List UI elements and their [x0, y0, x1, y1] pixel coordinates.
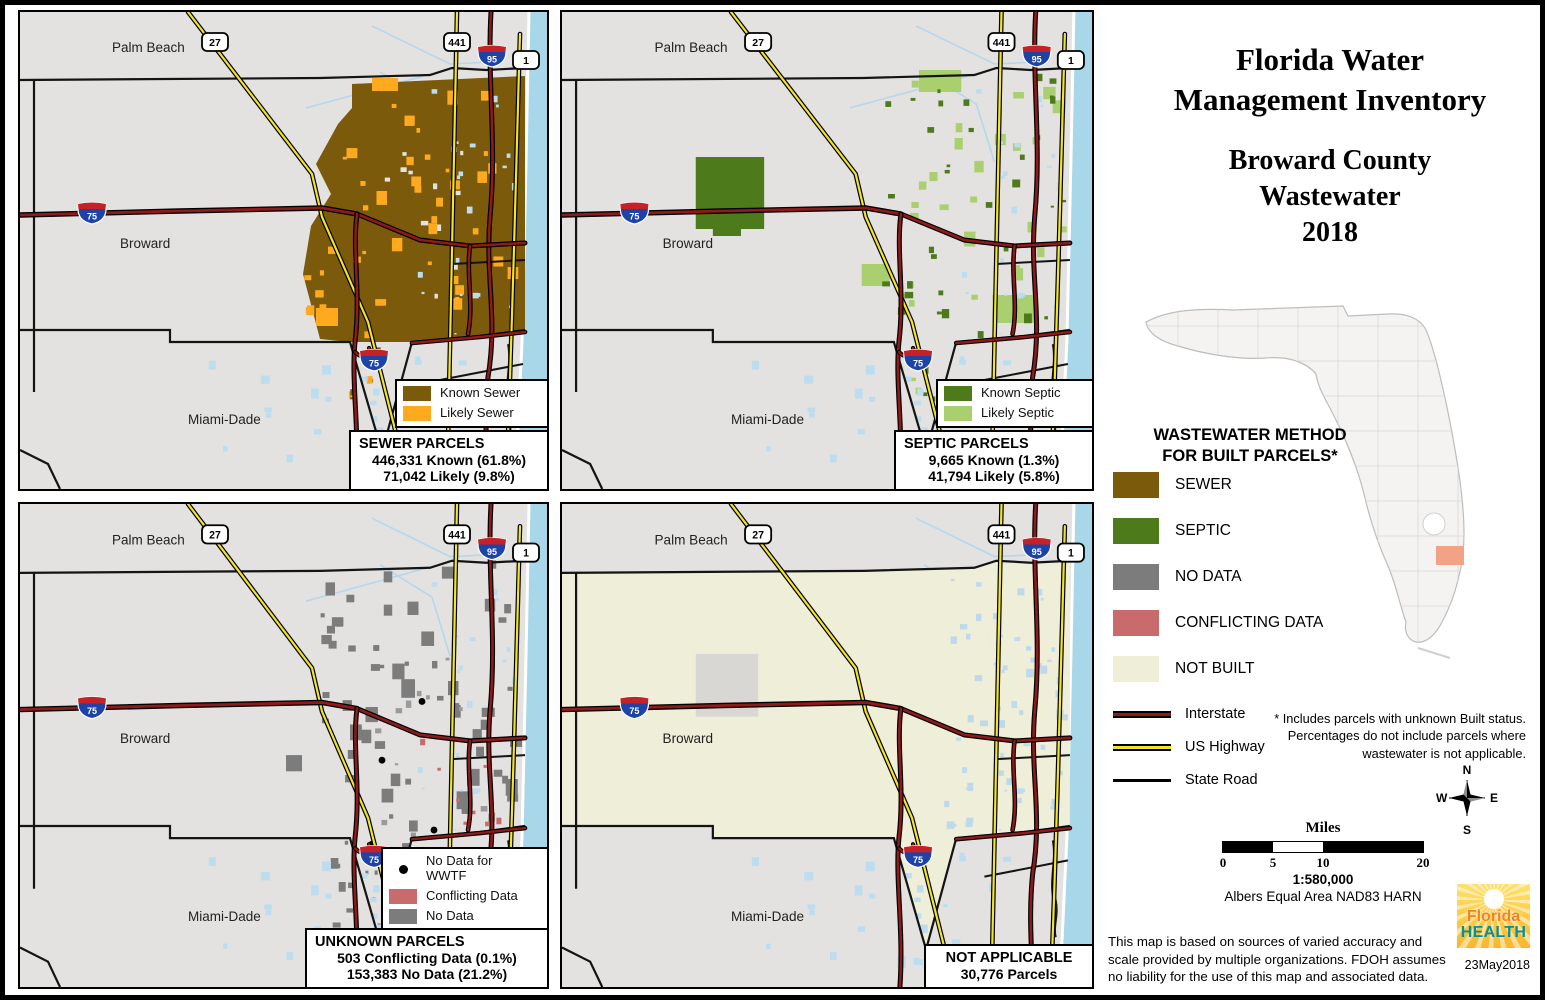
svg-text:95: 95 [487, 55, 497, 65]
map-scale-ratio: 1:580,000 [1205, 872, 1441, 887]
svg-text:Broward: Broward [663, 731, 714, 746]
figure-subtitle: Broward County Wastewater 2018 [1130, 143, 1530, 250]
stats-title: NOT APPLICABLE [934, 950, 1084, 966]
svg-text:75: 75 [913, 855, 923, 865]
unknown-stats-box: UNKNOWN PARCELS 503 Conflicting Data (0.… [305, 928, 549, 989]
svg-text:27: 27 [209, 529, 221, 541]
figure-title: Florida Water Management Inventory [1130, 40, 1530, 121]
legend-label: Conflicting Data [426, 889, 518, 904]
legend-label: No Data for WWTF [426, 854, 522, 884]
us-highway-line-sample [1113, 744, 1171, 751]
legend-row-conflicting: CONFLICTING DATA [1113, 610, 1323, 636]
likely-sewer-swatch [403, 406, 431, 421]
road-label: US Highway [1185, 739, 1265, 755]
florida-keys [1418, 648, 1450, 658]
us-1-shield: 1 [513, 51, 539, 69]
svg-text:Broward: Broward [663, 236, 713, 251]
us-1-shield: 1 [513, 543, 539, 561]
us-441-shield: 441 [988, 525, 1014, 543]
svg-text:441: 441 [993, 529, 1011, 541]
stats-line: 153,383 No Data (21.2%) [315, 966, 539, 982]
title-line: Management Inventory [1130, 80, 1530, 120]
us-1-shield: 1 [1058, 543, 1084, 561]
road-legend-row-state-road: State Road [1113, 771, 1265, 789]
svg-text:Palm Beach: Palm Beach [655, 532, 728, 547]
map-panel-sewer: Palm BeachBrowardMiami-Dade274419517575 … [18, 10, 549, 491]
stats-title: SEPTIC PARCELS [904, 436, 1084, 452]
legend-label: SEPTIC [1175, 522, 1231, 540]
svg-text:1: 1 [1068, 548, 1074, 560]
interstate-line-sample [1113, 711, 1171, 718]
svg-text:75: 75 [369, 359, 379, 369]
legend-label: NOT BUILT [1175, 660, 1255, 678]
legend-row-no-data: NO DATA [1113, 564, 1323, 590]
us-441-shield: 441 [444, 525, 470, 543]
legend-label: SEWER [1175, 476, 1232, 494]
svg-text:Broward: Broward [120, 731, 170, 746]
sewer-legend: Known Sewer Likely Sewer [395, 379, 549, 428]
stats-line: 30,776 Parcels [934, 966, 1084, 982]
legend-label: Likely Septic [981, 406, 1054, 421]
svg-text:75: 75 [87, 212, 97, 222]
compass-west: W [1436, 791, 1447, 805]
sewer-stats-box: SEWER PARCELS 446,331 Known (61.8%) 71,0… [349, 430, 549, 491]
scale-bar-title: Miles [1205, 820, 1441, 837]
scale-segment [1273, 842, 1323, 852]
svg-text:95: 95 [1032, 55, 1042, 65]
broward-county-highlight [1436, 546, 1464, 565]
svg-text:27: 27 [752, 37, 764, 49]
legend-footnote: * Includes parcels with unknown Built st… [1262, 710, 1526, 762]
scale-tick: 20 [1417, 855, 1430, 871]
subtitle-line: 2018 [1130, 215, 1530, 251]
legend-label: Known Septic [981, 386, 1061, 401]
svg-text:75: 75 [629, 212, 639, 222]
svg-text:441: 441 [448, 37, 466, 49]
known-sewer-swatch [403, 386, 431, 401]
subtitle-line: Broward County [1130, 143, 1530, 179]
subtitle-line: Wastewater [1130, 179, 1530, 215]
stats-line: 503 Conflicting Data (0.1%) [315, 950, 539, 966]
svg-text:95: 95 [487, 547, 497, 557]
conflicting-data-swatch [1113, 610, 1159, 636]
us-27-shield: 27 [202, 33, 228, 51]
stats-line: 41,794 Likely (5.8%) [904, 468, 1084, 484]
svg-text:441: 441 [448, 529, 466, 541]
legend-label: Likely Sewer [440, 406, 514, 421]
septic-stats-box: SEPTIC PARCELS 9,665 Known (1.3%) 41,794… [894, 430, 1094, 491]
road-label: Interstate [1185, 706, 1245, 722]
likely-septic-swatch [944, 406, 972, 421]
wastewater-legend: SEWER SEPTIC NO DATA CONFLICTING DATA NO… [1113, 472, 1323, 702]
road-legend: Interstate US Highway State Road [1113, 705, 1265, 804]
svg-text:75: 75 [629, 706, 639, 716]
not-applicable-stats-box: NOT APPLICABLE 30,776 Parcels [924, 944, 1094, 989]
septic-legend: Known Septic Likely Septic [936, 379, 1094, 428]
legend-row: Conflicting Data [389, 889, 539, 904]
us-27-shield: 27 [745, 33, 771, 51]
stats-line: 9,665 Known (1.3%) [904, 452, 1084, 468]
stats-line: 71,042 Likely (9.8%) [359, 468, 539, 484]
svg-text:Palm Beach: Palm Beach [112, 532, 185, 547]
svg-text:Palm Beach: Palm Beach [655, 40, 728, 55]
title-line: Florida Water [1130, 40, 1530, 80]
scale-tick: 5 [1270, 855, 1277, 871]
svg-text:Palm Beach: Palm Beach [112, 40, 185, 55]
compass-rose: N W E S [1436, 763, 1498, 837]
scale-segment [1323, 842, 1423, 852]
us-27-shield: 27 [745, 525, 771, 543]
us-441-shield: 441 [988, 33, 1014, 51]
legend-title-line: FOR BUILT PARCELS* [1130, 446, 1370, 467]
compass-star-icon [1449, 780, 1485, 816]
legend-row: Known Sewer [403, 386, 539, 401]
us-441-shield: 441 [444, 33, 470, 51]
sun-icon [1484, 889, 1504, 909]
figure-root: Palm BeachBrowardMiami-Dade274419517575 … [0, 0, 1545, 1000]
logo-health-text: HEALTH [1457, 924, 1530, 942]
legend-row: Likely Sewer [403, 406, 539, 421]
not-built-swatch [1113, 656, 1159, 682]
florida-health-logo: Florida HEALTH [1457, 884, 1530, 948]
svg-text:95: 95 [1032, 547, 1042, 557]
svg-text:75: 75 [369, 855, 379, 865]
no-data-wwtf-dot-swatch [389, 865, 417, 874]
legend-row: Likely Septic [944, 406, 1084, 421]
svg-text:Miami-Dade: Miami-Dade [731, 909, 804, 924]
svg-text:Miami-Dade: Miami-Dade [188, 909, 261, 924]
us-1-shield: 1 [1058, 51, 1084, 69]
legend-label: No Data [426, 909, 474, 924]
legend-label: NO DATA [1175, 568, 1242, 586]
legend-label: CONFLICTING DATA [1175, 614, 1323, 632]
conflicting-data-swatch [389, 889, 417, 904]
svg-text:27: 27 [752, 529, 764, 541]
legend-row: No Data for WWTF [389, 854, 539, 884]
svg-text:Miami-Dade: Miami-Dade [731, 412, 804, 427]
legend-row: No Data [389, 909, 539, 924]
scale-bar-ticks: 0 5 10 20 [1223, 855, 1423, 871]
disclaimer-text: This map is based on sources of varied a… [1108, 933, 1452, 986]
stats-line: 446,331 Known (61.8%) [359, 452, 539, 468]
compass-east: E [1490, 791, 1498, 805]
map-projection: Albers Equal Area NAD83 HARN [1155, 889, 1491, 904]
scale-tick: 0 [1220, 855, 1227, 871]
state-road-line-sample [1113, 779, 1171, 782]
legend-title-line: WASTEWATER METHOD [1130, 425, 1370, 446]
compass-south: S [1463, 823, 1471, 837]
svg-text:Broward: Broward [120, 236, 170, 251]
septic-swatch [1113, 518, 1159, 544]
wastewater-legend-title: WASTEWATER METHOD FOR BUILT PARCELS* [1130, 425, 1370, 466]
road-legend-row-us-highway: US Highway [1113, 738, 1265, 756]
us-27-shield: 27 [202, 525, 228, 543]
scale-segment [1223, 842, 1273, 852]
legend-row-not-built: NOT BUILT [1113, 656, 1323, 682]
unknown-legend: No Data for WWTF Conflicting Data No Dat… [381, 847, 549, 931]
map-panel-unknown: Palm BeachBrowardMiami-Dade274419517575 … [18, 502, 549, 989]
svg-text:1: 1 [523, 55, 529, 67]
svg-text:Miami-Dade: Miami-Dade [188, 412, 261, 427]
no-data-swatch [1113, 564, 1159, 590]
lake-okeechobee [1423, 513, 1445, 535]
road-label: State Road [1185, 772, 1258, 788]
legend-label: Known Sewer [440, 386, 520, 401]
stats-title: SEWER PARCELS [359, 436, 539, 452]
no-data-swatch [389, 909, 417, 924]
not-applicable-map: Palm BeachBrowardMiami-Dade274419517575 [562, 504, 1092, 987]
svg-text:441: 441 [993, 37, 1011, 49]
legend-row-septic: SEPTIC [1113, 518, 1323, 544]
known-septic-swatch [944, 386, 972, 401]
compass-north: N [1463, 763, 1472, 777]
svg-text:1: 1 [1068, 55, 1074, 67]
map-panel-not-applicable: Palm BeachBrowardMiami-Dade274419517575 … [560, 502, 1094, 989]
scale-bar: Miles 0 5 10 20 [1205, 820, 1441, 871]
svg-text:75: 75 [87, 706, 97, 716]
svg-text:1: 1 [523, 548, 529, 560]
legend-row: Known Septic [944, 386, 1084, 401]
map-date: 23May2018 [1446, 958, 1530, 972]
road-legend-row-interstate: Interstate [1113, 705, 1265, 723]
legend-row-sewer: SEWER [1113, 472, 1323, 498]
scale-tick: 10 [1317, 855, 1330, 871]
svg-text:75: 75 [913, 359, 923, 369]
scale-bar-graphic [1222, 841, 1424, 853]
map-panel-septic: Palm BeachBrowardMiami-Dade274419517575 … [560, 10, 1094, 491]
stats-title: UNKNOWN PARCELS [315, 934, 539, 950]
svg-text:27: 27 [209, 37, 221, 49]
sewer-swatch [1113, 472, 1159, 498]
